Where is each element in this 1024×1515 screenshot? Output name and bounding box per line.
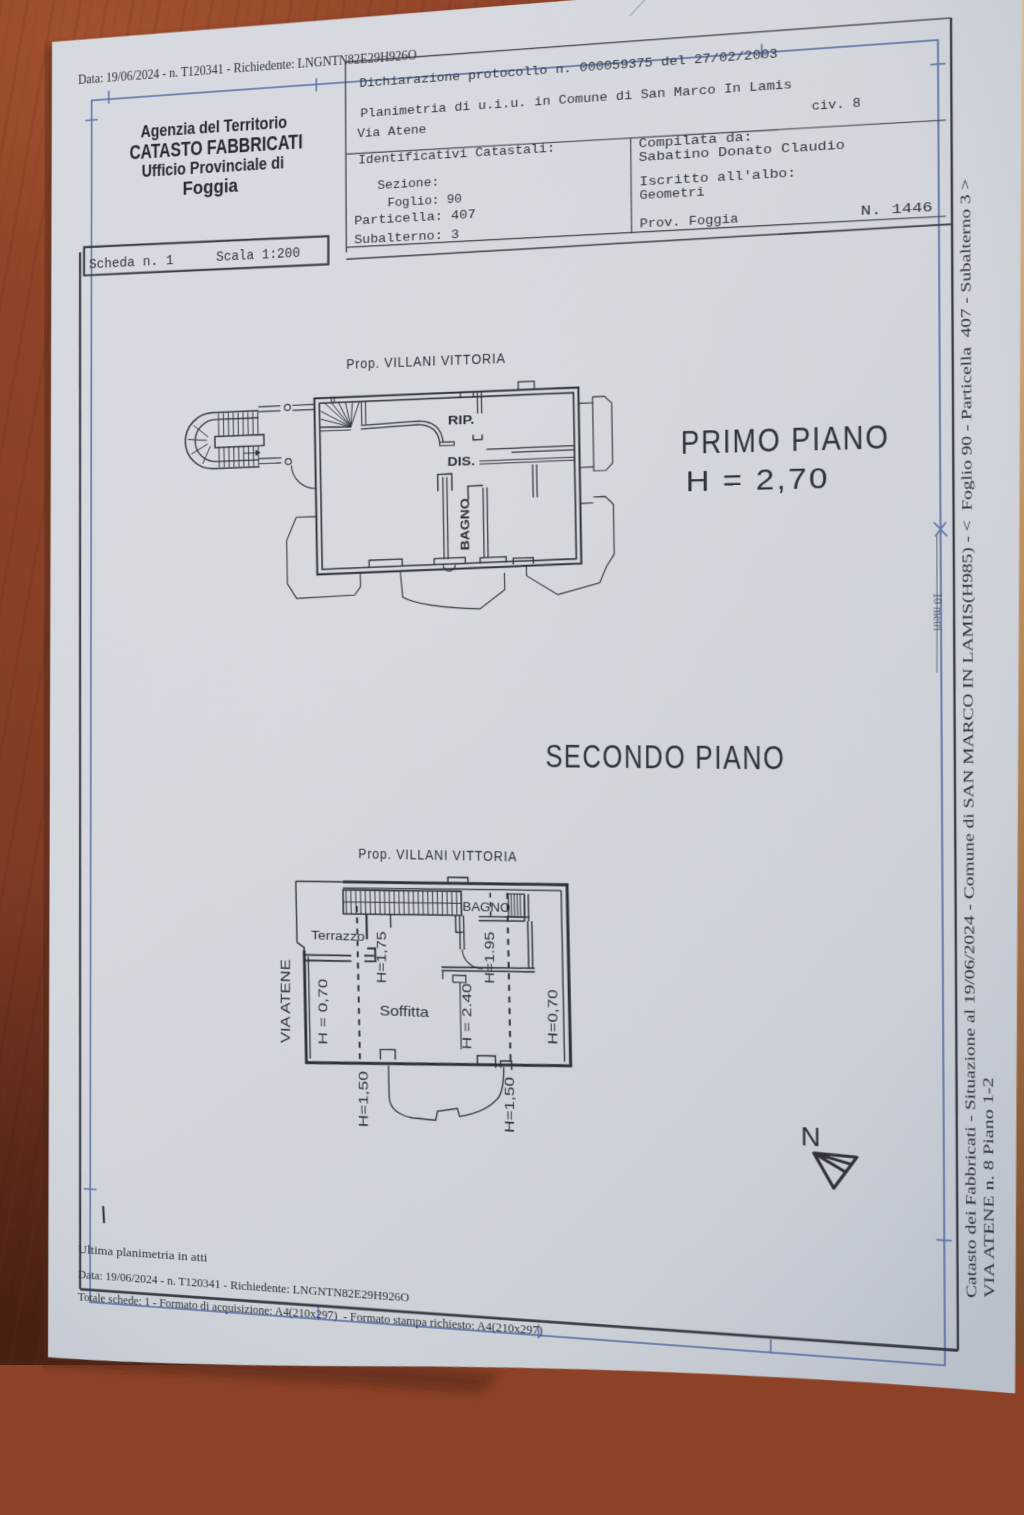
svg-text:H = 2,70: H = 2,70: [686, 460, 830, 498]
svg-text:H=1.95: H=1.95: [482, 931, 498, 984]
svg-text:H=1,75: H=1,75: [374, 931, 389, 984]
svg-text:H=1,50: H=1,50: [502, 1076, 518, 1133]
svg-text:PRIMO PIANO: PRIMO PIANO: [681, 420, 890, 462]
svg-text:BAGNO: BAGNO: [459, 498, 472, 551]
svg-text:civ. 8: civ. 8: [812, 97, 861, 115]
svg-text:SECONDO PIANO: SECONDO PIANO: [545, 739, 785, 777]
svg-text:DIS.: DIS.: [448, 456, 475, 470]
svg-text:Soffitta: Soffitta: [380, 1004, 431, 1021]
svg-text:VIA ATENE n. 8 Piano 1-2: VIA ATENE n. 8 Piano 1-2: [980, 1077, 997, 1299]
svg-text:10 metri: 10 metri: [930, 593, 944, 632]
svg-text:VIA ATENE: VIA ATENE: [277, 959, 293, 1044]
svg-text:H=1,50: H=1,50: [356, 1070, 371, 1127]
svg-text:H=0,70: H=0,70: [545, 989, 561, 1045]
svg-text:BAGNO: BAGNO: [462, 898, 510, 914]
svg-text:Prop. VILLANI VITTORIA: Prop. VILLANI VITTORIA: [358, 847, 517, 865]
svg-text:RIP.: RIP.: [448, 414, 474, 428]
svg-text:N: N: [801, 1121, 821, 1151]
svg-text:H = 0,70: H = 0,70: [316, 978, 330, 1045]
svg-text:Foggia: Foggia: [183, 175, 239, 199]
svg-text:H = 2.40: H = 2.40: [461, 983, 474, 1050]
